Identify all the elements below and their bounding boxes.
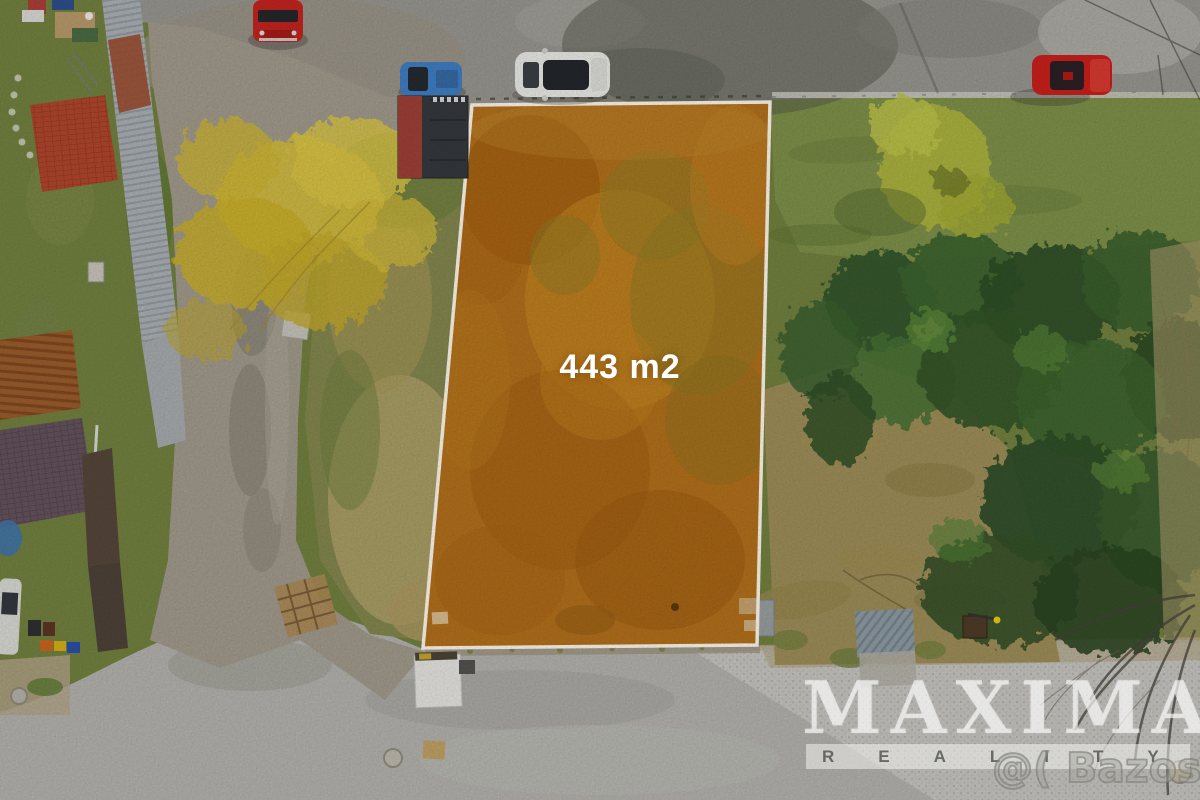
aerial-photo-stage: 443 m2 MAXIMA REALITY @( Bazos.cz <box>0 0 1200 800</box>
watermark-listing-site: @( Bazos.cz <box>992 744 1200 792</box>
plot-area-label: 443 m2 <box>500 348 740 387</box>
watermark-agency: MAXIMA <box>802 672 1198 744</box>
